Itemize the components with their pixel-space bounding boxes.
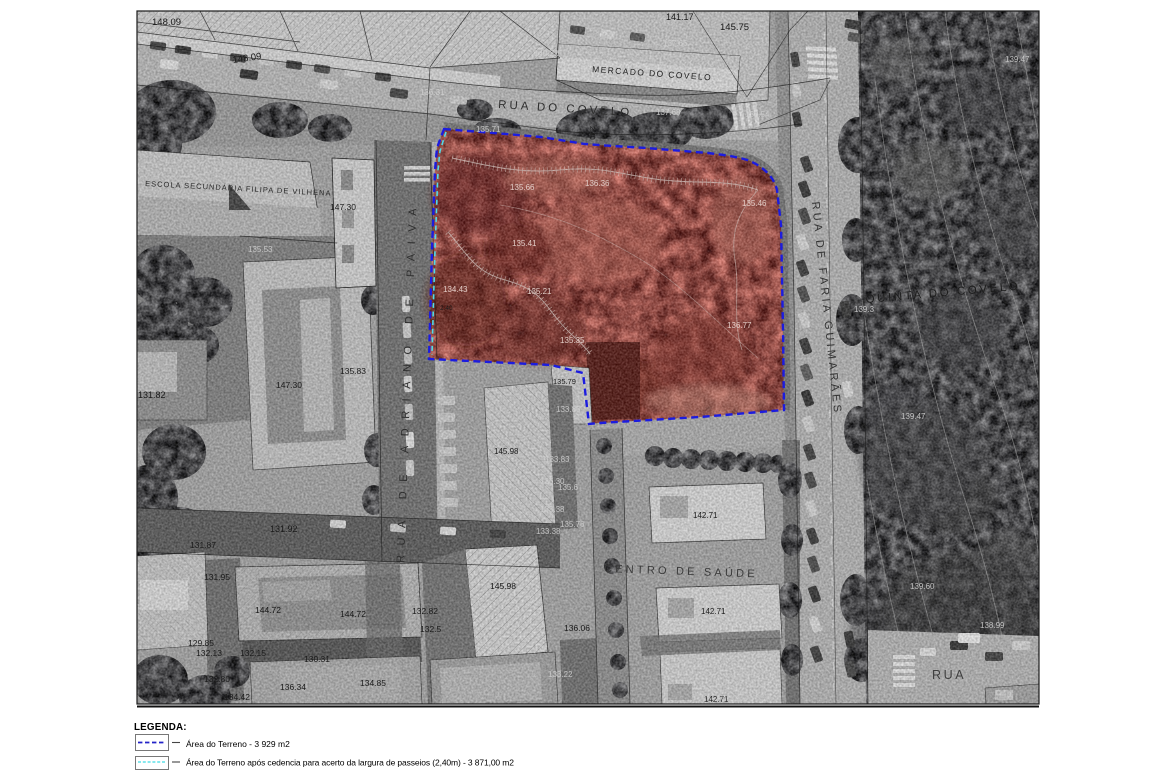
svg-text:135.71: 135.71 <box>476 125 501 134</box>
svg-text:132.5: 132.5 <box>420 624 442 634</box>
svg-text:140.22: 140.22 <box>534 49 559 58</box>
svg-text:132.13: 132.13 <box>196 648 222 658</box>
svg-text:139.47: 139.47 <box>1005 55 1030 64</box>
svg-text:136.06: 136.06 <box>564 623 590 633</box>
svg-text:135.21: 135.21 <box>527 287 552 296</box>
svg-text:138.99: 138.99 <box>980 621 1005 630</box>
svg-text:147.30: 147.30 <box>276 380 302 390</box>
svg-text:133.83: 133.83 <box>545 455 570 464</box>
svg-text:2.40: 2.40 <box>440 305 453 312</box>
svg-text:138.54: 138.54 <box>745 110 770 119</box>
svg-text:135.53: 135.53 <box>248 245 273 254</box>
svg-text:132.82: 132.82 <box>412 606 438 616</box>
svg-text:134.43: 134.43 <box>443 285 468 294</box>
svg-text:135.79: 135.79 <box>553 377 576 386</box>
svg-text:Área do Terreno após cedencia: Área do Terreno após cedencia para acert… <box>186 758 514 768</box>
svg-text:134.42: 134.42 <box>224 692 250 702</box>
svg-text:134.85: 134.85 <box>360 678 386 688</box>
svg-text:131.87: 131.87 <box>190 540 216 550</box>
svg-text:144.72: 144.72 <box>340 609 366 619</box>
svg-text:136.31: 136.31 <box>420 88 445 97</box>
svg-text:130.31: 130.31 <box>304 654 330 664</box>
svg-text:142.71: 142.71 <box>693 511 718 520</box>
svg-text:135.46: 135.46 <box>742 199 767 208</box>
svg-text:RUA: RUA <box>932 668 966 682</box>
svg-text:136.77: 136.77 <box>727 321 752 330</box>
svg-text:132.80: 132.80 <box>204 674 230 684</box>
svg-text:144.72: 144.72 <box>255 605 281 615</box>
svg-text:133.38: 133.38 <box>536 527 561 536</box>
svg-text:135.76: 135.76 <box>560 520 585 529</box>
svg-text:132.15: 132.15 <box>240 648 266 658</box>
svg-text:131.92: 131.92 <box>270 524 298 534</box>
svg-text:145.98: 145.98 <box>490 581 516 591</box>
svg-text:133.38: 133.38 <box>540 505 565 514</box>
svg-text:136.34: 136.34 <box>280 682 306 692</box>
svg-text:135.6: 135.6 <box>558 483 579 492</box>
svg-text:137.66: 137.66 <box>663 39 688 48</box>
svg-text:135.41: 135.41 <box>512 239 537 248</box>
svg-text:145.98: 145.98 <box>494 447 519 456</box>
svg-text:148.09: 148.09 <box>152 17 181 28</box>
svg-text:LEGENDA:: LEGENDA: <box>134 722 187 733</box>
svg-text:135.83: 135.83 <box>340 366 366 376</box>
svg-text:131.95: 131.95 <box>204 572 230 582</box>
svg-text:2.40: 2.40 <box>588 126 595 140</box>
svg-text:139.47: 139.47 <box>901 412 926 421</box>
svg-text:136.36: 136.36 <box>585 179 610 188</box>
svg-text:145.75: 145.75 <box>720 22 749 33</box>
svg-text:139.60: 139.60 <box>910 582 935 591</box>
svg-text:131.82: 131.82 <box>138 390 166 400</box>
svg-text:147.30: 147.30 <box>330 202 356 212</box>
svg-text:139.3: 139.3 <box>854 305 875 314</box>
svg-text:135.35: 135.35 <box>560 336 585 345</box>
svg-text:129.85: 129.85 <box>188 638 214 648</box>
svg-text:142.71: 142.71 <box>701 607 726 616</box>
svg-text:Área do Terreno - 3 929 m2: Área do Terreno - 3 929 m2 <box>186 739 290 749</box>
svg-text:137.68: 137.68 <box>656 108 681 117</box>
svg-text:133.22: 133.22 <box>548 670 573 679</box>
svg-text:141.17: 141.17 <box>666 12 694 22</box>
svg-text:133.86: 133.86 <box>556 405 581 414</box>
svg-text:135.66: 135.66 <box>510 183 535 192</box>
